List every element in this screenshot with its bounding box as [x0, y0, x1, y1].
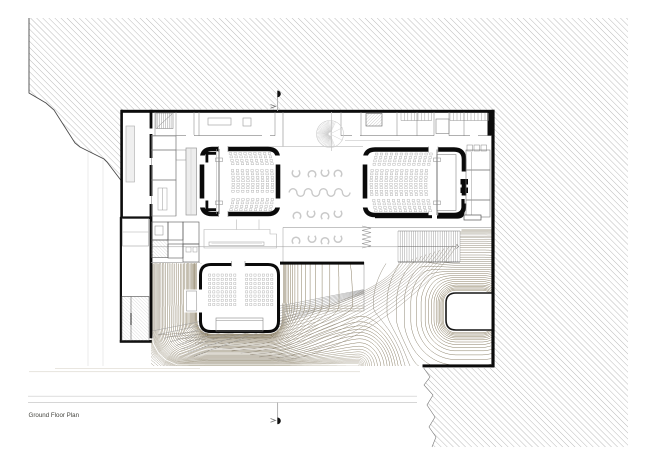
svg-text:Ground Floor Plan: Ground Floor Plan: [29, 412, 80, 419]
